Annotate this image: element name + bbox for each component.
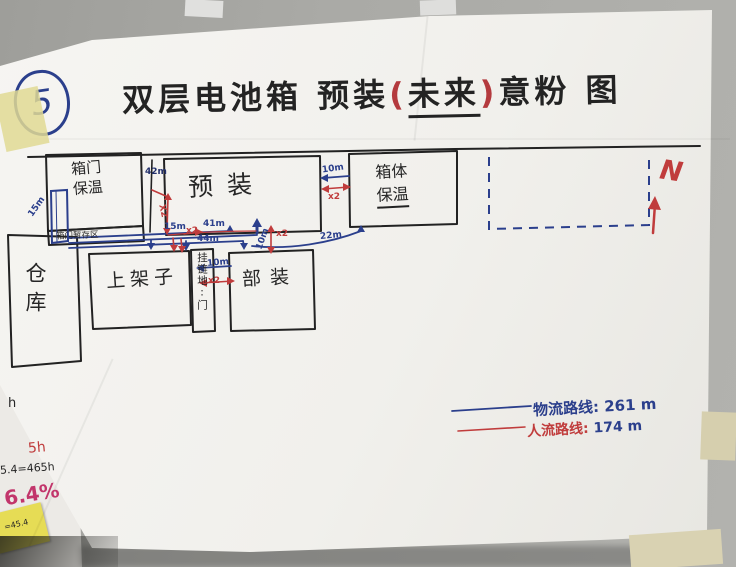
room-label-door-insulation: 箱门 保温: [70, 157, 103, 199]
wall-top-line: [28, 146, 700, 157]
logistics-routes: [51, 176, 531, 411]
title-part1: 双层电池箱 预装: [122, 76, 390, 120]
legend-logistics-line: [452, 406, 531, 411]
room-label-door-storage: 箱门暂存区: [56, 228, 99, 241]
tape-top-right: [420, 0, 457, 16]
legend-people-value: 174 m: [593, 418, 642, 437]
side-note-fragment: h: [8, 396, 16, 411]
measure-10m-strip: 10m: [207, 257, 230, 269]
walls: [8, 146, 700, 367]
photo-of-hand-drawn-layout: h 5h 5.4=465h 6.4% =45.4: [0, 0, 736, 567]
future-area-dashed-outline: [489, 155, 649, 229]
title-paren-open: (: [389, 75, 408, 113]
north-label: N: [658, 154, 685, 188]
measure-x2-vertical10: x2: [276, 229, 288, 239]
door-insulation-line2: 保温: [72, 177, 104, 200]
tape-bottom-right: [629, 529, 723, 567]
measure-44m: 44m: [197, 234, 219, 244]
room-label-shelf: 上架子: [105, 262, 179, 294]
measure-42m: 42m: [145, 167, 167, 177]
measure-x2-strip: x2: [208, 276, 220, 286]
measure-15m-mid: 15m: [164, 222, 186, 232]
side-note-fragment: 5h: [27, 439, 46, 456]
legend-logistics-label: 物流路线:: [533, 398, 600, 419]
legend-people-label: 人流路线:: [527, 421, 589, 440]
room-label-body-insulation: 箱体 保温: [375, 159, 409, 209]
legend-people-line: [458, 427, 525, 431]
title-highlight: 未来: [407, 74, 480, 118]
title-part2: 意粉 图: [498, 71, 622, 112]
tape-right-edge: [700, 411, 736, 460]
measure-x2-gap: x2: [328, 192, 340, 202]
door-insulation-line1: 箱门: [70, 157, 102, 180]
body-insulation-line2: 保温: [376, 182, 409, 209]
room-label-part-assembly: 部装: [241, 262, 298, 292]
people-routes: [152, 187, 655, 431]
legend-logistics-value: 261 m: [604, 395, 657, 416]
room-label-preassembly: 预装: [187, 164, 267, 204]
measure-41m: 41m: [203, 219, 225, 229]
tape-top-left: [185, 0, 224, 18]
title-paren-close: ): [479, 73, 498, 111]
body-insulation-line1: 箱体: [375, 159, 408, 184]
room-label-warehouse: 仓库: [20, 262, 50, 320]
